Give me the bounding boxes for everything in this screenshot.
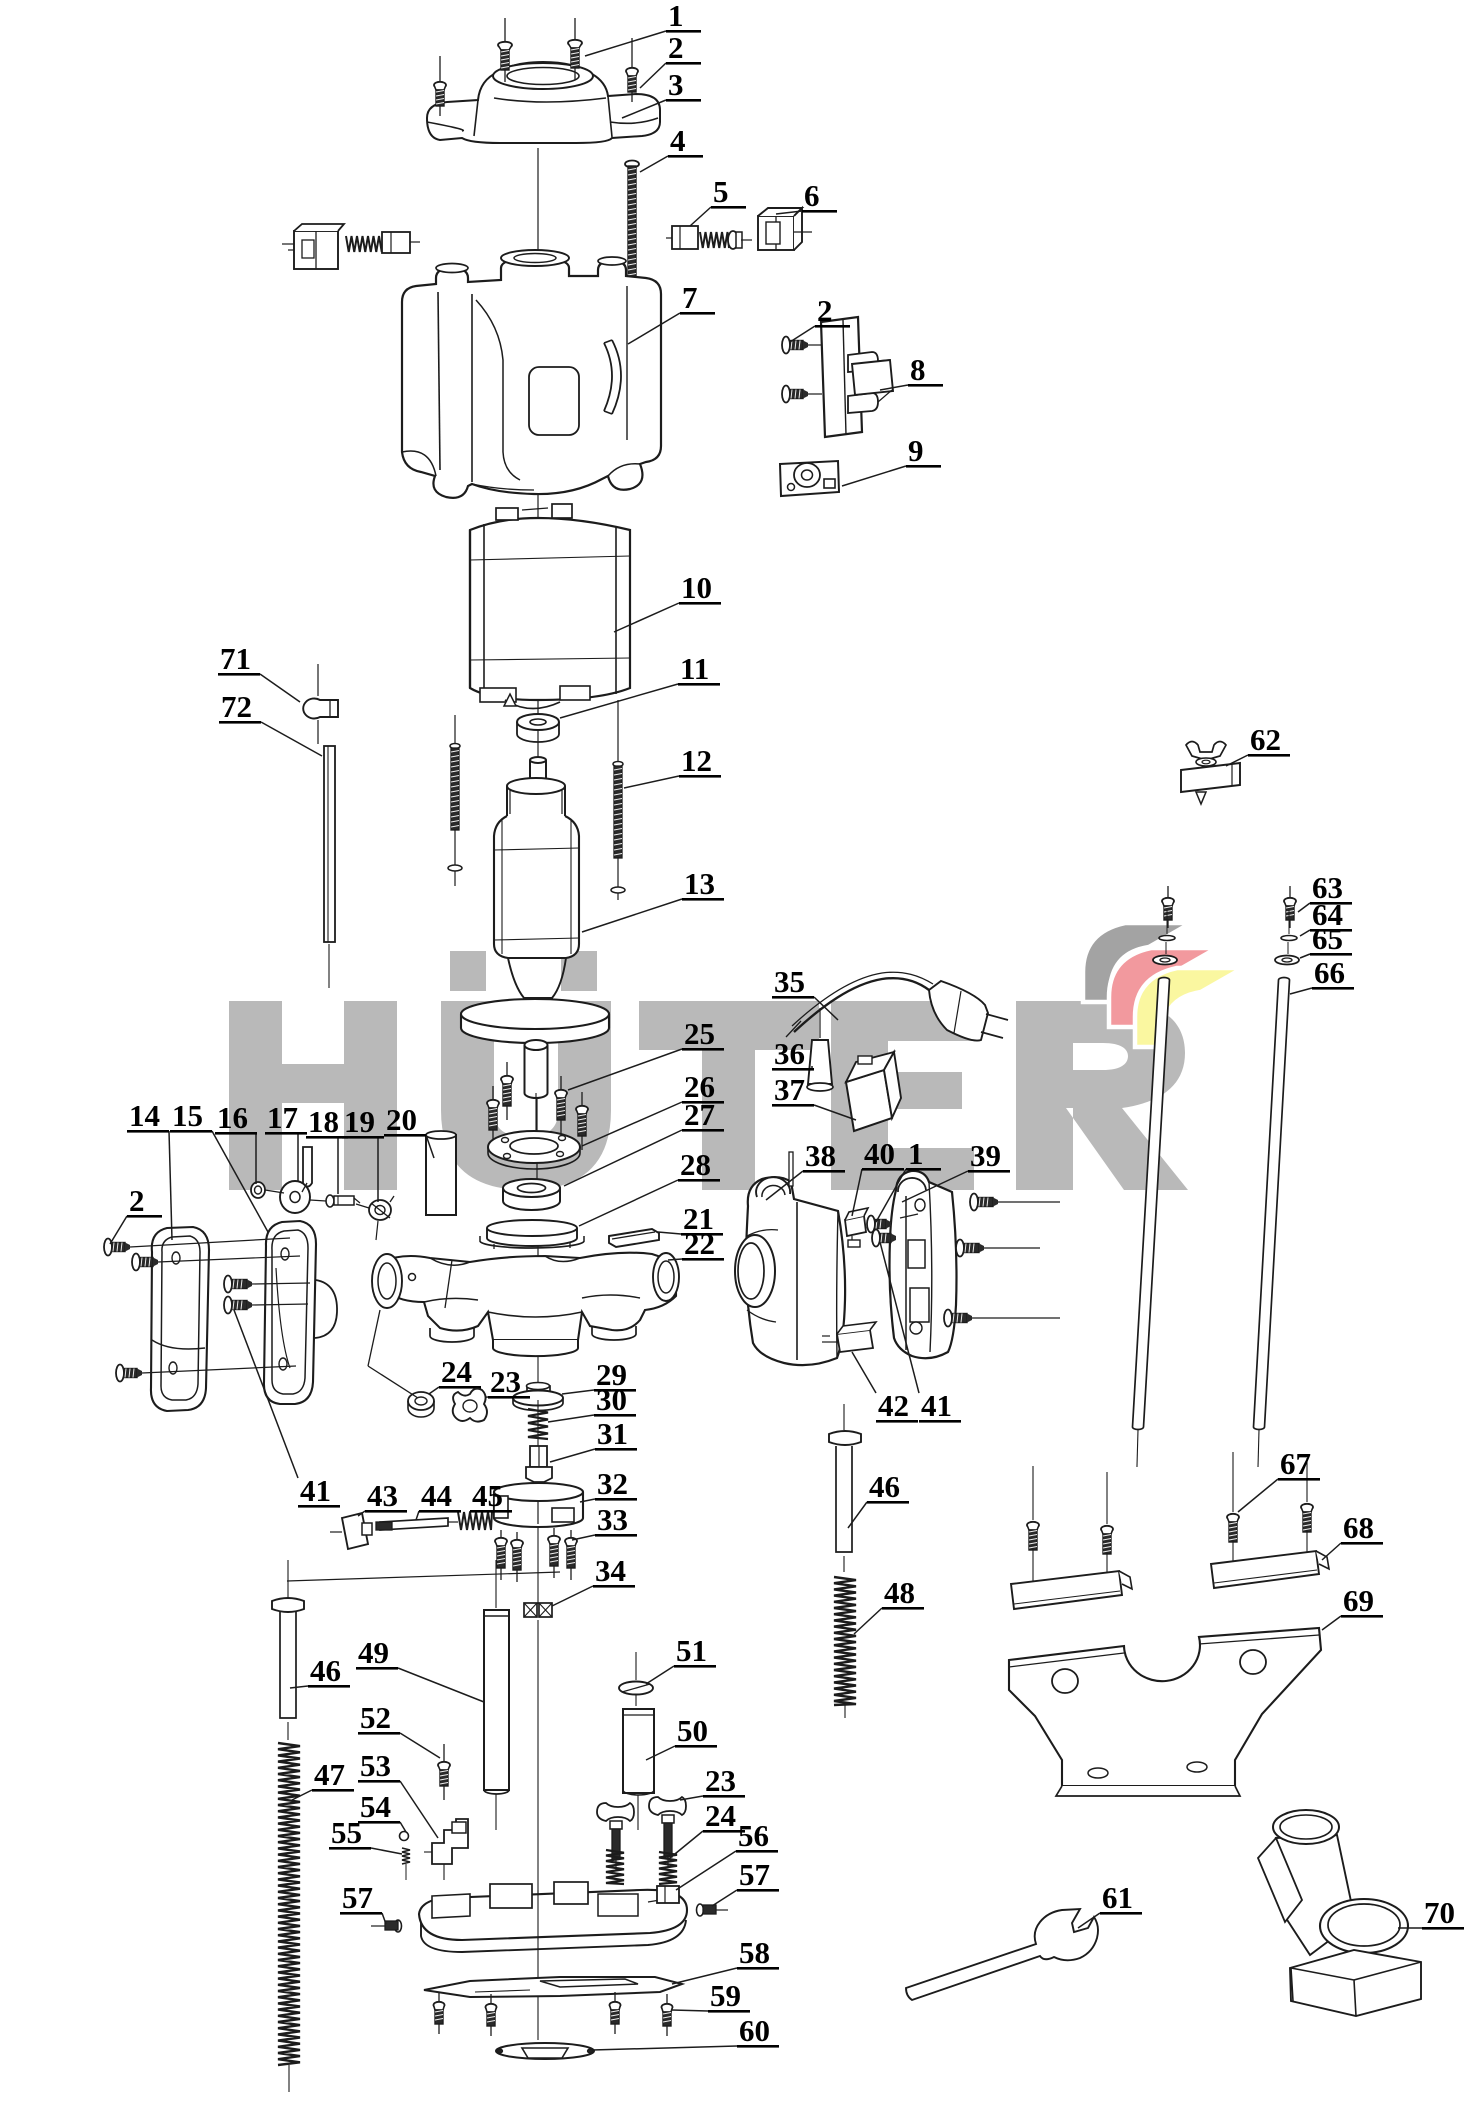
svg-text:16: 16 (217, 1100, 248, 1135)
svg-text:58: 58 (739, 1935, 770, 1970)
svg-text:22: 22 (684, 1226, 715, 1261)
svg-text:36: 36 (774, 1036, 805, 1071)
svg-text:27: 27 (684, 1097, 715, 1132)
svg-text:55: 55 (331, 1815, 362, 1850)
svg-text:43: 43 (367, 1478, 398, 1513)
svg-text:52: 52 (360, 1700, 391, 1735)
svg-text:53: 53 (360, 1748, 391, 1783)
svg-text:6: 6 (804, 178, 820, 213)
svg-text:33: 33 (597, 1502, 628, 1537)
svg-text:7: 7 (682, 280, 698, 315)
svg-text:39: 39 (970, 1138, 1001, 1173)
svg-text:11: 11 (680, 651, 709, 686)
svg-text:48: 48 (884, 1575, 915, 1610)
svg-text:4: 4 (670, 123, 686, 158)
svg-text:69: 69 (1343, 1583, 1374, 1618)
svg-text:50: 50 (677, 1713, 708, 1748)
svg-text:2: 2 (668, 30, 684, 65)
svg-text:1: 1 (668, 0, 684, 33)
svg-text:41: 41 (300, 1473, 331, 1508)
svg-text:28: 28 (680, 1147, 711, 1182)
svg-text:46: 46 (869, 1469, 900, 1504)
svg-text:68: 68 (1343, 1510, 1374, 1545)
svg-text:49: 49 (358, 1635, 389, 1670)
svg-text:24: 24 (441, 1354, 472, 1389)
svg-text:3: 3 (668, 67, 684, 102)
svg-text:71: 71 (220, 641, 251, 676)
svg-text:42: 42 (878, 1388, 909, 1423)
svg-text:25: 25 (684, 1016, 715, 1051)
svg-text:15: 15 (172, 1098, 203, 1133)
svg-text:67: 67 (1280, 1446, 1311, 1481)
svg-text:5: 5 (713, 174, 729, 209)
svg-text:46: 46 (310, 1653, 341, 1688)
svg-text:20: 20 (386, 1102, 417, 1137)
svg-text:54: 54 (360, 1789, 391, 1824)
svg-text:72: 72 (221, 689, 252, 724)
svg-text:70: 70 (1424, 1895, 1455, 1930)
svg-text:1: 1 (908, 1136, 924, 1171)
svg-text:51: 51 (676, 1633, 707, 1668)
svg-text:47: 47 (314, 1757, 345, 1792)
svg-text:23: 23 (490, 1364, 521, 1399)
svg-text:62: 62 (1250, 722, 1281, 757)
svg-text:41: 41 (921, 1388, 952, 1423)
svg-text:10: 10 (681, 570, 712, 605)
svg-text:35: 35 (774, 964, 805, 999)
svg-text:38: 38 (805, 1138, 836, 1173)
svg-text:45: 45 (472, 1478, 503, 1513)
svg-text:37: 37 (774, 1072, 805, 1107)
svg-text:12: 12 (681, 743, 712, 778)
svg-text:8: 8 (910, 352, 926, 387)
svg-text:19: 19 (344, 1104, 375, 1139)
svg-text:2: 2 (817, 293, 833, 328)
svg-text:14: 14 (129, 1098, 160, 1133)
svg-text:23: 23 (705, 1763, 736, 1798)
svg-text:32: 32 (597, 1466, 628, 1501)
svg-text:60: 60 (739, 2013, 770, 2048)
svg-text:57: 57 (739, 1857, 770, 1892)
svg-text:24: 24 (705, 1798, 736, 1833)
svg-text:59: 59 (710, 1978, 741, 2013)
svg-text:13: 13 (684, 866, 715, 901)
svg-text:57: 57 (342, 1880, 373, 1915)
svg-text:9: 9 (908, 433, 924, 468)
svg-text:18: 18 (308, 1104, 339, 1139)
svg-text:17: 17 (267, 1100, 298, 1135)
svg-text:34: 34 (595, 1553, 626, 1588)
svg-text:44: 44 (421, 1478, 452, 1513)
svg-text:65: 65 (1312, 921, 1343, 956)
svg-text:56: 56 (738, 1818, 769, 1853)
svg-text:30: 30 (596, 1382, 627, 1417)
svg-text:2: 2 (129, 1183, 145, 1218)
svg-text:40: 40 (864, 1136, 895, 1171)
svg-text:66: 66 (1314, 955, 1345, 990)
svg-text:61: 61 (1102, 1880, 1133, 1915)
svg-text:31: 31 (597, 1416, 628, 1451)
